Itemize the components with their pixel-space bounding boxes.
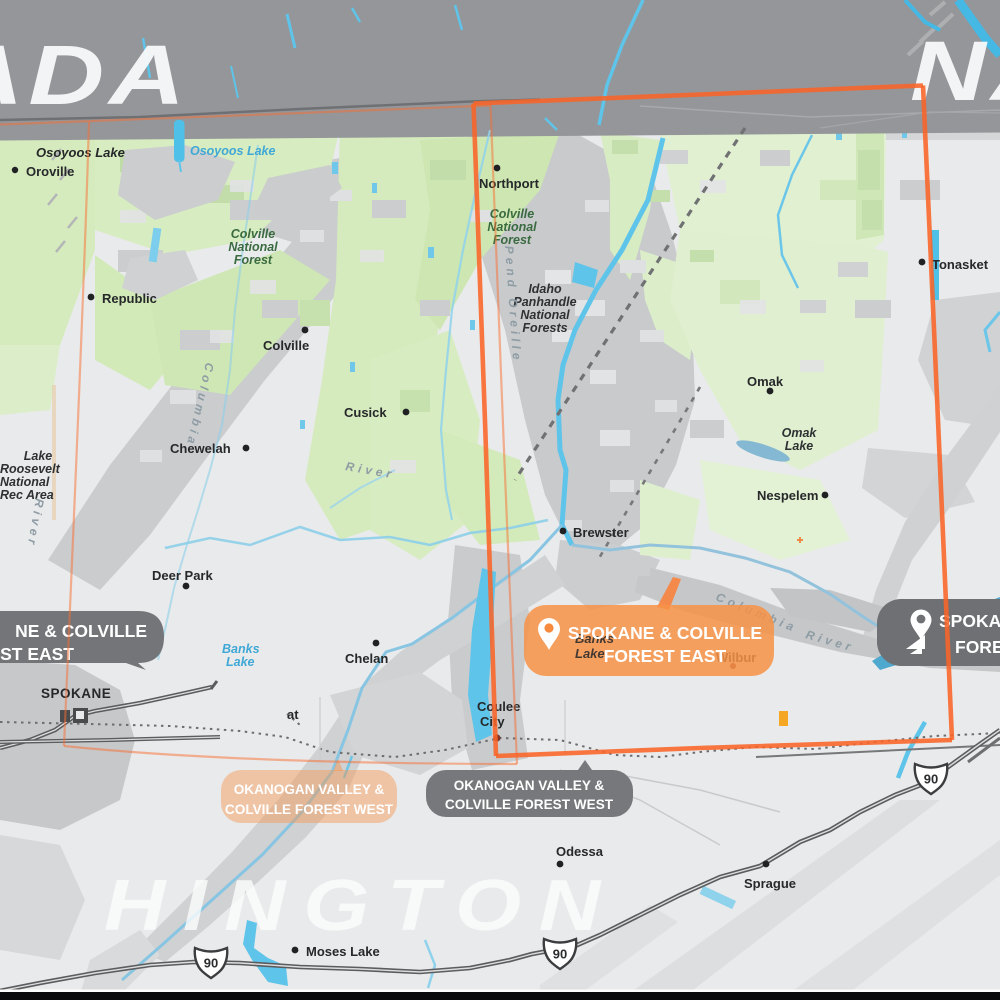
svg-text:Odessa: Odessa <box>556 844 604 859</box>
svg-text:Chewelah: Chewelah <box>170 441 231 456</box>
svg-text:COLVILLE FOREST WEST: COLVILLE FOREST WEST <box>445 797 614 812</box>
svg-text:Moses Lake: Moses Lake <box>306 944 380 959</box>
svg-text:Lake: Lake <box>226 655 255 669</box>
svg-text:Tonasket: Tonasket <box>932 257 989 272</box>
svg-text:at: at <box>287 707 299 722</box>
svg-text:Colville: Colville <box>231 227 276 241</box>
svg-text:National: National <box>228 240 278 254</box>
svg-text:Lake: Lake <box>785 439 814 453</box>
svg-text:Chelan: Chelan <box>345 651 388 666</box>
svg-text:90: 90 <box>204 956 218 971</box>
svg-text:NE & COLVILLE: NE & COLVILLE <box>15 621 147 641</box>
svg-text:90: 90 <box>924 772 938 787</box>
svg-text:SPOKANE & COLVILLE: SPOKANE & COLVILLE <box>568 623 762 643</box>
svg-text:Banks: Banks <box>222 642 260 656</box>
svg-text:Panhandle: Panhandle <box>513 295 576 309</box>
svg-text:Forests: Forests <box>522 321 567 335</box>
svg-text:Osoyoos Lake: Osoyoos Lake <box>190 144 275 158</box>
svg-text:SPOKANE: SPOKANE <box>41 686 111 701</box>
svg-text:FOREST EAST: FOREST EAST <box>955 637 1000 657</box>
svg-text:Osoyoos Lake: Osoyoos Lake <box>36 145 125 160</box>
svg-text:Lake: Lake <box>575 646 605 661</box>
svg-text:ADA: ADA <box>0 29 190 123</box>
svg-text:90: 90 <box>553 947 567 962</box>
svg-text:Omak: Omak <box>747 374 784 389</box>
svg-text:National: National <box>0 475 50 489</box>
svg-text:Colville: Colville <box>263 338 309 353</box>
svg-text:OKANOGAN VALLEY &: OKANOGAN VALLEY & <box>454 778 605 793</box>
svg-text:Colville: Colville <box>490 207 535 221</box>
svg-text:ST EAST: ST EAST <box>0 644 74 664</box>
svg-text:OKANOGAN VALLEY &: OKANOGAN VALLEY & <box>234 782 385 797</box>
svg-text:Republic: Republic <box>102 291 157 306</box>
svg-text:Cusick: Cusick <box>344 405 387 420</box>
svg-text:Deer Park: Deer Park <box>152 568 213 583</box>
svg-text:Idaho: Idaho <box>528 282 562 296</box>
svg-text:FOREST EAST: FOREST EAST <box>604 646 727 666</box>
svg-text:HINGTON: HINGTON <box>104 865 618 945</box>
svg-text:Roosevelt: Roosevelt <box>0 462 61 476</box>
svg-text:Forest: Forest <box>234 253 273 267</box>
svg-text:Nespelem: Nespelem <box>757 488 818 503</box>
svg-text:Omak: Omak <box>782 426 818 440</box>
svg-text:Northport: Northport <box>479 176 540 191</box>
svg-text:Sprague: Sprague <box>744 876 796 891</box>
svg-text:Brewster: Brewster <box>573 525 629 540</box>
svg-text:Lake: Lake <box>24 449 53 463</box>
svg-text:Oroville: Oroville <box>26 164 74 179</box>
svg-text:National: National <box>520 308 570 322</box>
svg-text:COLVILLE FOREST WEST: COLVILLE FOREST WEST <box>225 802 394 817</box>
